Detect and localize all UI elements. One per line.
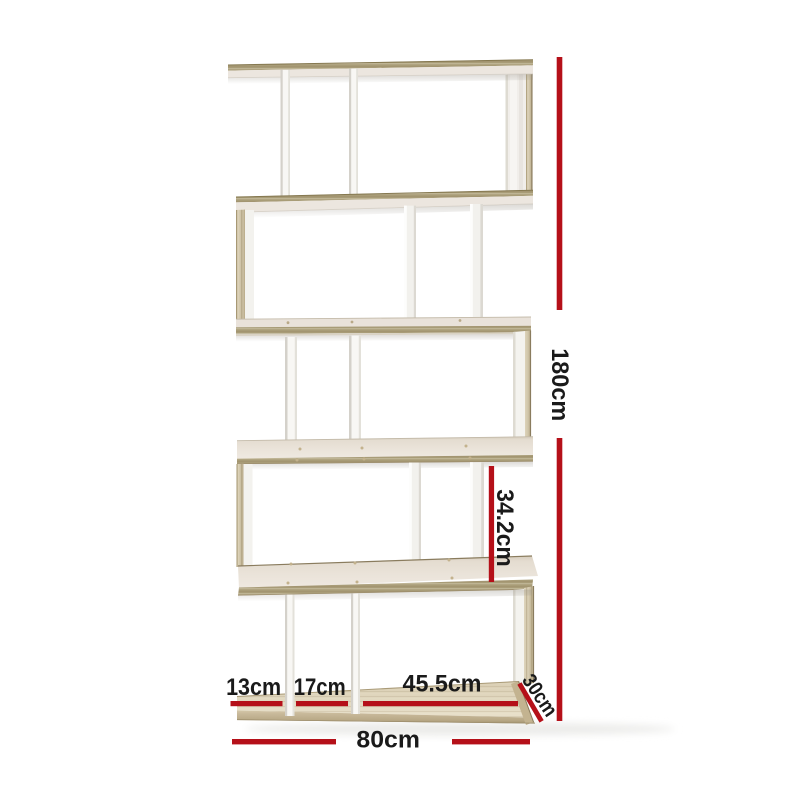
svg-text:180cm: 180cm	[546, 348, 573, 421]
svg-text:80cm: 80cm	[356, 727, 420, 754]
svg-text:17cm: 17cm	[294, 674, 346, 701]
svg-text:34.2cm: 34.2cm	[491, 489, 518, 567]
svg-text:45.5cm: 45.5cm	[403, 671, 482, 698]
svg-text:13cm: 13cm	[226, 674, 281, 701]
